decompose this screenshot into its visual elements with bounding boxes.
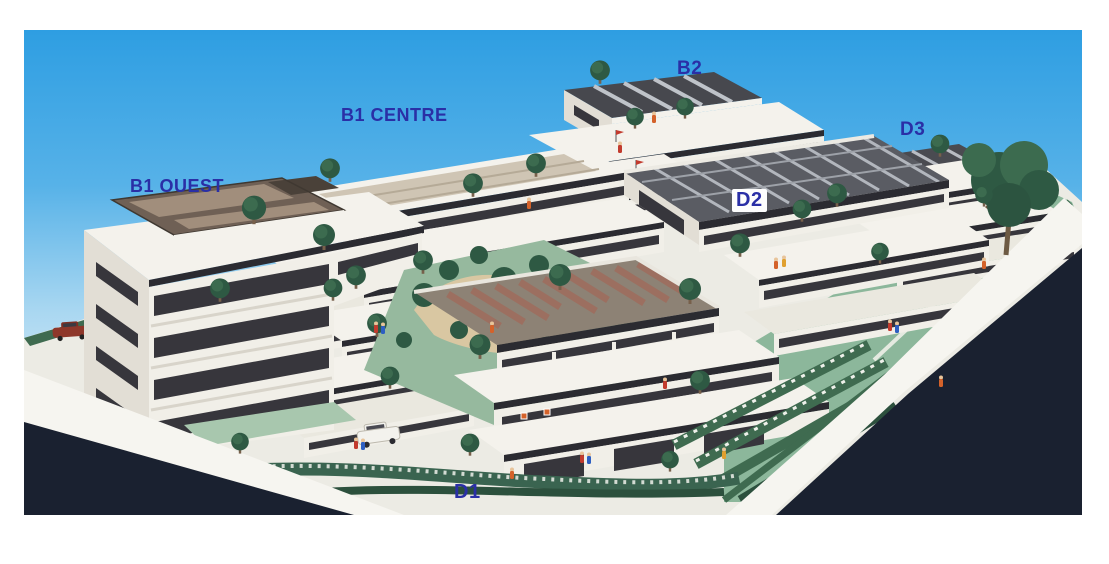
model-illustration [24, 30, 1082, 515]
label-b1-centre: B1 CENTRE [341, 106, 448, 124]
model-photo: B1 OUEST B1 CENTRE B2 D3 D2 D1 [24, 30, 1082, 515]
label-d2: D2 [732, 189, 767, 212]
label-d3: D3 [900, 120, 925, 139]
label-d1: D1 [454, 482, 481, 502]
label-b1-ouest: B1 OUEST [130, 177, 224, 195]
label-b2: B2 [677, 59, 702, 78]
page: B1 OUEST B1 CENTRE B2 D3 D2 D1 [0, 0, 1109, 564]
